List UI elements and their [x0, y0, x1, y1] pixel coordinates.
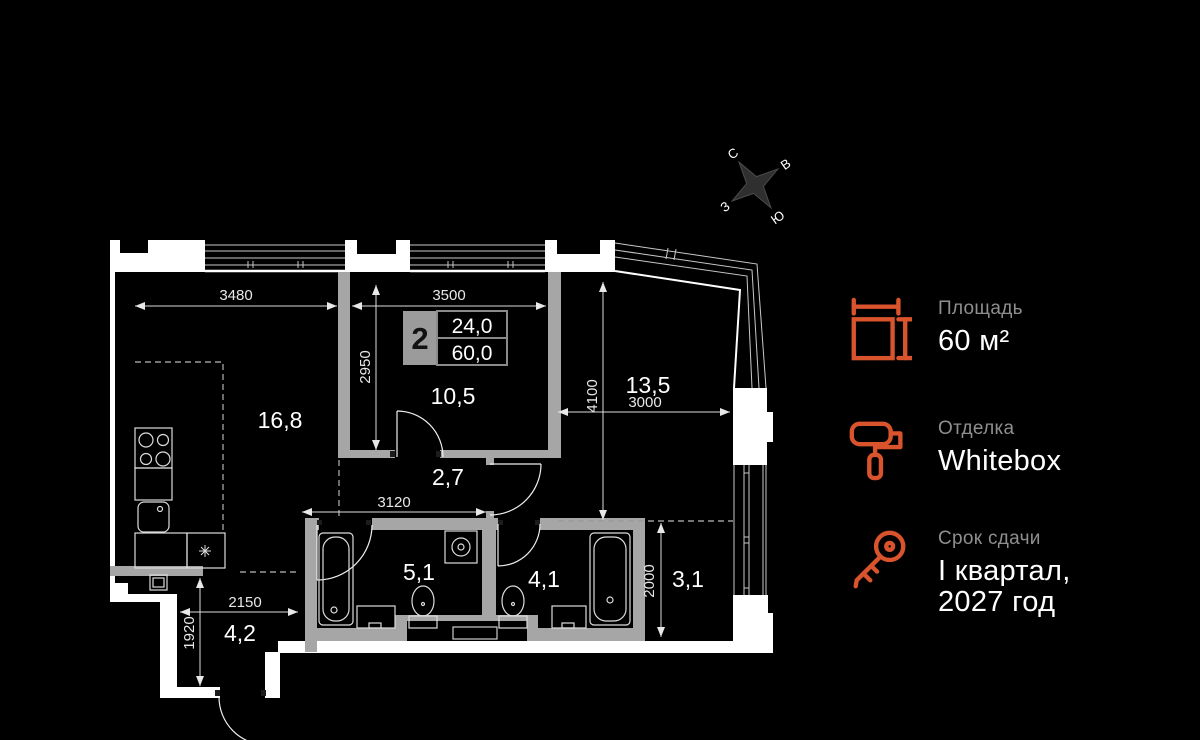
dim-4100: 4100: [584, 379, 601, 412]
room-label-bathroom-1: 5,1: [403, 559, 435, 585]
floor-plan-drawing: 3480 3500 2950 4100 3000 3120 2150 1920 …: [0, 0, 1200, 740]
area-value: 60 м²: [938, 326, 1023, 357]
room-label-kitchen-living: 13,5: [626, 372, 671, 398]
dim-3500: 3500: [432, 287, 465, 304]
room-label-bathroom-2: 4,1: [528, 566, 560, 592]
right-glazing: [734, 465, 766, 595]
kitchen-fixtures: [135, 428, 225, 590]
key-icon: [846, 526, 912, 592]
dim-2950: 2950: [357, 350, 374, 383]
badge-rooms-count: 2: [411, 321, 428, 356]
compass-east: В: [778, 156, 794, 173]
finishing-value: Whitebox: [938, 446, 1061, 477]
paint-roller-icon: [846, 416, 912, 482]
compass-north: С: [725, 145, 741, 163]
compass-south: Ю: [768, 207, 787, 227]
room-label-bedroom: 10,5: [431, 383, 476, 409]
dim-3120: 3120: [377, 494, 410, 511]
info-item-finishing: Отделка Whitebox: [846, 416, 1061, 482]
dim-3480: 3480: [219, 287, 252, 304]
compass-icon: С В Ю З: [695, 124, 816, 247]
badge-total-area: 60,0: [452, 342, 493, 365]
unit-badge: 2 24,0 60,0: [403, 311, 507, 365]
area-label: Площадь: [938, 298, 1023, 320]
room-label-entry: 4,2: [224, 620, 256, 646]
badge-living-area: 24,0: [452, 315, 493, 338]
compass-west: З: [717, 198, 732, 215]
bathroom-fixtures: [319, 531, 630, 628]
room-label-loggia: 3,1: [672, 566, 704, 592]
floorplan-page: 3480 3500 2950 4100 3000 3120 2150 1920 …: [0, 0, 1200, 740]
room-label-living: 16,8: [258, 407, 303, 433]
area-dimensions-icon: [846, 296, 912, 362]
dim-2000: 2000: [641, 564, 658, 597]
room-label-hallway: 2,7: [432, 464, 464, 490]
info-item-area: Площадь 60 м²: [846, 296, 1023, 362]
dim-1920: 1920: [181, 616, 198, 649]
completion-value-line2: 2027 год: [938, 587, 1071, 618]
info-item-completion: Срок сдачи I квартал, 2027 год: [846, 526, 1071, 619]
completion-label: Срок сдачи: [938, 528, 1071, 550]
dim-2150: 2150: [228, 594, 261, 611]
finishing-label: Отделка: [938, 418, 1061, 440]
room-labels: 16,8 10,5 2,7 13,5 5,1 4,1 3,1 4,2: [224, 372, 704, 646]
bay-window: [615, 243, 766, 388]
completion-value-line1: I квартал,: [938, 556, 1071, 587]
